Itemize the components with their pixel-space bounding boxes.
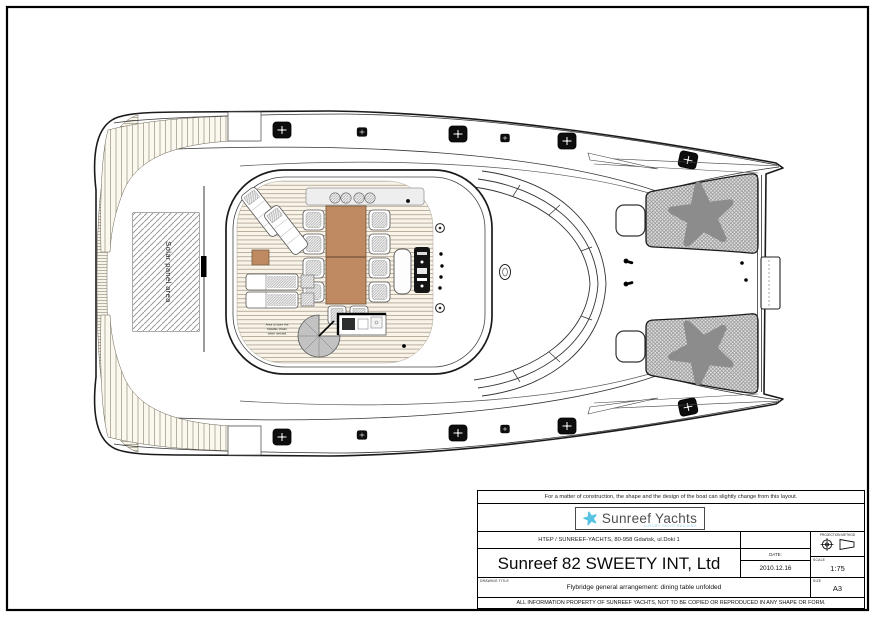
foredeck-hatch	[616, 205, 645, 236]
solar-panel-label: Solar panel area	[164, 241, 173, 303]
radar-mast	[500, 265, 511, 280]
sunreef-star-icon	[583, 511, 598, 526]
deck-hatch-icon	[558, 133, 576, 149]
scale-label: SCALE	[813, 558, 825, 562]
projection-cell: PROJECTION METHOD	[811, 532, 864, 557]
bar-sink	[342, 318, 355, 330]
date-label: DATE:	[741, 549, 811, 561]
deck-hatch-icon	[449, 126, 467, 142]
empty-cell	[741, 532, 811, 549]
spiral-staircase	[298, 315, 340, 357]
flybridge: Area to store the foldable chairs when n…	[226, 170, 492, 374]
dining-table	[326, 206, 366, 304]
deck-hatch-icon	[501, 134, 510, 142]
drawing-title-label: DRAWING TITLE	[480, 579, 509, 583]
storage-note: Area to store the foldable chairs when n…	[266, 323, 289, 336]
size-label: SIZE	[813, 579, 821, 583]
drawing-title: Flybridge general arrangement: dining ta…	[478, 584, 810, 591]
size-value: A3	[811, 584, 864, 593]
drawing-title-cell: DRAWING TITLE Flybridge general arrangem…	[478, 578, 811, 598]
svg-text:foldable chairs: foldable chairs	[267, 327, 287, 331]
solar-panel-area: Solar panel area	[133, 213, 199, 331]
first-angle-projection-icon	[817, 537, 859, 552]
copyright-footer: ALL INFORMATION PROPERTY OF SUNREEF YACH…	[478, 598, 864, 608]
svg-text:when needed: when needed	[268, 332, 287, 336]
scale-value: 1:75	[811, 564, 864, 573]
side-table	[252, 250, 269, 265]
deck-locker	[228, 112, 261, 141]
bow-platform	[761, 257, 780, 309]
scale-cell: SCALE 1:75	[811, 557, 864, 578]
dining-table-top	[326, 206, 366, 304]
grill-unit	[414, 247, 430, 293]
date-value: 2010.12.16	[741, 561, 811, 578]
size-cell: SIZE A3	[811, 578, 864, 598]
drawing-sheet: Solar panel area	[0, 0, 875, 617]
sunreef-logo: Sunreef Yachts LUXURY YACHT BUILDING	[575, 507, 705, 530]
deck-hatch-icon	[273, 122, 291, 138]
bar-counter	[338, 314, 386, 335]
company-address: HTEP / SUNREEF-YACHTS, 80-958 Gdańsk, ul…	[478, 532, 741, 549]
deck-hatch-icon	[357, 128, 367, 137]
title-block: For a matter of construction, the shape …	[477, 490, 865, 609]
helm-seats	[306, 188, 424, 205]
deck-hatch-icon	[678, 150, 699, 169]
logo-tagline: LUXURY YACHT BUILDING	[644, 524, 697, 528]
project-title: Sunreef 82 SWEETY INT, Ltd	[478, 549, 741, 578]
svg-text:Area to store the: Area to store the	[266, 323, 289, 327]
construction-disclaimer: For a matter of construction, the shape …	[478, 491, 864, 504]
logo-row: Sunreef Yachts LUXURY YACHT BUILDING	[478, 504, 864, 532]
bench-seat	[394, 249, 411, 294]
